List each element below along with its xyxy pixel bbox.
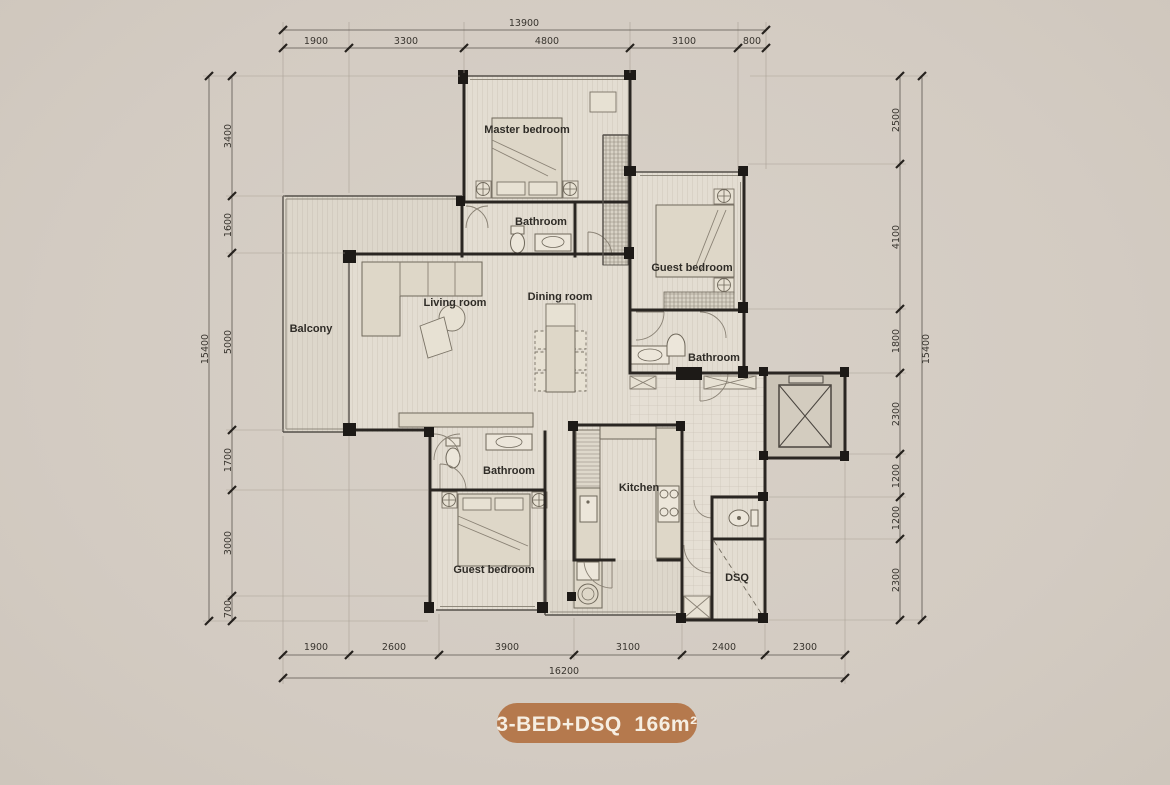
- dim-top-2: 3300: [394, 36, 418, 47]
- unit-type-badge: 3-BED+DSQ 166m²: [496, 703, 697, 743]
- dim-bottom-3: 3900: [495, 642, 519, 653]
- dimensions-right: 2500 4100 1800 2300 1200 1200 2300 15400: [748, 72, 932, 624]
- dim-right-7: 2300: [891, 568, 902, 592]
- kitchen-sink: [580, 496, 597, 522]
- unit-type-badge-label: 3-BED+DSQ 166m²: [496, 713, 697, 736]
- room-label-balcony: Balcony: [290, 323, 334, 335]
- dim-right-5: 1200: [891, 464, 902, 488]
- fridge: [576, 430, 600, 488]
- dim-bottom-5: 2400: [712, 642, 736, 653]
- room-label-kitchen: Kitchen: [619, 482, 660, 494]
- room-label-living-room: Living room: [424, 297, 487, 309]
- floor-plan-canvas: Master bedroom Bathroom Guest bedroom Ba…: [0, 0, 1170, 785]
- dim-top-4: 3100: [672, 36, 696, 47]
- dim-left-5: 3000: [223, 531, 234, 555]
- dim-left-total: 15400: [200, 334, 211, 364]
- balcony-floor: [283, 196, 349, 432]
- dim-bottom-1: 1900: [304, 642, 328, 653]
- service-yard-floor: [545, 560, 682, 615]
- dim-left-2: 1600: [223, 213, 234, 237]
- bed-bench: [664, 292, 734, 309]
- floor-plan: Master bedroom Bathroom Guest bedroom Ba…: [0, 0, 1170, 785]
- room-label-guest-bedroom-lower: Guest bedroom: [453, 564, 535, 576]
- elevator: [779, 376, 831, 447]
- tv-console: [399, 413, 533, 427]
- dim-bottom-2: 2600: [382, 642, 406, 653]
- dim-top-3: 4800: [535, 36, 559, 47]
- room-label-master-bedroom: Master bedroom: [484, 124, 570, 136]
- dim-right-3: 1800: [891, 329, 902, 353]
- dim-right-4: 2300: [891, 402, 902, 426]
- room-label-lower-bathroom: Bathroom: [483, 465, 535, 477]
- room-label-guest-bathroom-right: Bathroom: [688, 352, 740, 364]
- room-label-dsq: DSQ: [725, 572, 749, 584]
- room-label-master-bathroom: Bathroom: [515, 216, 567, 228]
- room-label-dining-room: Dining room: [528, 291, 593, 303]
- dim-left-6: 700: [223, 600, 234, 618]
- room-label-guest-bedroom-right: Guest bedroom: [651, 262, 733, 274]
- master-wardrobe: [603, 135, 628, 265]
- dim-left-1: 3400: [223, 124, 234, 148]
- stove: [658, 486, 679, 522]
- dim-right-6: 1200: [891, 506, 902, 530]
- dim-right-1: 2500: [891, 108, 902, 132]
- master-desk: [590, 92, 616, 112]
- dim-top-5: 800: [743, 36, 761, 47]
- dim-right-2: 4100: [891, 225, 902, 249]
- dim-bottom-total: 16200: [549, 666, 579, 677]
- dim-top-1: 1900: [304, 36, 328, 47]
- dim-bottom-4: 3100: [616, 642, 640, 653]
- dim-left-4: 1700: [223, 448, 234, 472]
- dim-top-total: 13900: [509, 18, 539, 29]
- dim-left-3: 5000: [223, 330, 234, 354]
- dim-right-total: 15400: [921, 334, 932, 364]
- dim-bottom-6: 2300: [793, 642, 817, 653]
- wc-fixture: [729, 510, 758, 526]
